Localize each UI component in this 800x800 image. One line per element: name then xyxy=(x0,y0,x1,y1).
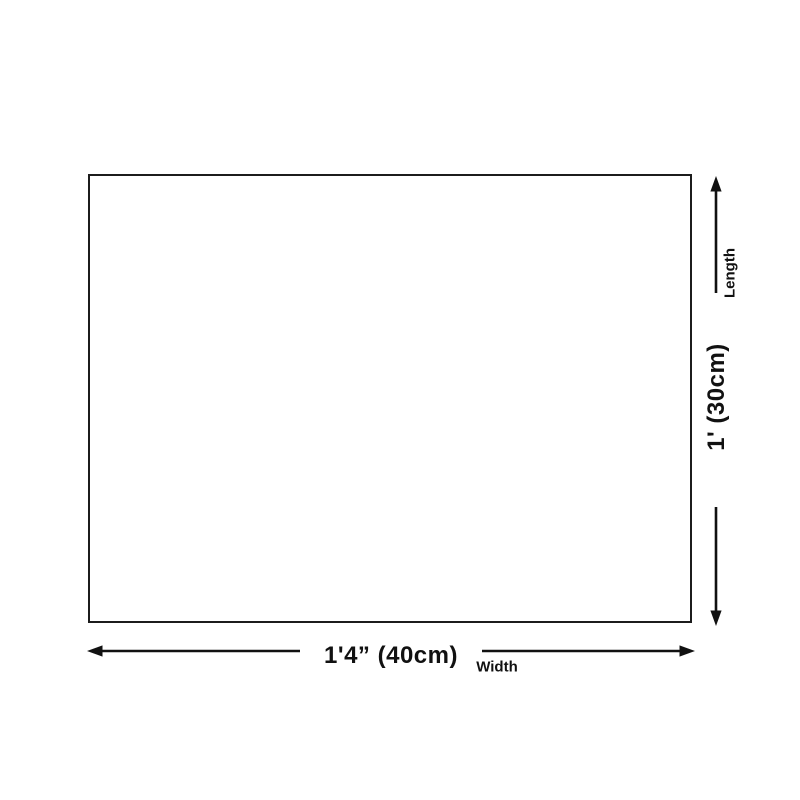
dimension-diagram: 1' (30cm) Length 1'4” (40cm) Width xyxy=(0,0,800,800)
arrow-down-icon xyxy=(710,611,721,627)
dimension-arrows-layer xyxy=(0,0,800,800)
arrow-left-icon xyxy=(87,645,103,656)
arrow-right-icon xyxy=(680,645,696,656)
arrow-up-icon xyxy=(710,176,721,192)
width-caption-label: Width xyxy=(476,660,518,675)
width-value-label: 1'4” (40cm) xyxy=(324,644,458,668)
length-value-label: 1' (30cm) xyxy=(705,343,729,451)
length-caption-label: Length xyxy=(723,248,738,298)
